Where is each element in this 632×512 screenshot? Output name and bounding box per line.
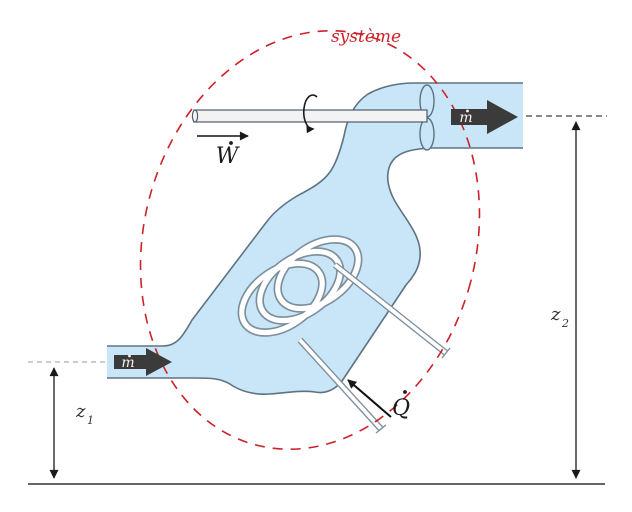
flow-system: [107, 83, 523, 394]
mass-flow-out-label: m: [459, 110, 472, 126]
z1-subscript: 1: [87, 414, 94, 427]
heat-label: Q: [392, 396, 410, 421]
shaft-bar: [194, 110, 427, 122]
shaft: [192, 110, 427, 122]
system-boundary-label: système: [331, 27, 401, 47]
z1-label: z: [75, 401, 86, 422]
z2-label: z: [550, 304, 561, 325]
height-marker-z2: z 2: [550, 122, 576, 478]
work-overdot: [229, 141, 233, 145]
z2-subscript: 2: [561, 317, 569, 330]
fluid-body: [107, 83, 523, 394]
thermodynamic-open-system-diagram: système W Q m m z 1: [0, 0, 632, 512]
shaft-end-cap: [192, 110, 197, 122]
diagram-svg: système W Q m m z 1: [0, 0, 632, 512]
mass-flow-in-label: m: [121, 355, 134, 371]
work-label: W: [216, 144, 241, 169]
height-marker-z1: z 1: [54, 368, 94, 478]
heat-overdot: [403, 390, 407, 394]
outlet-port-lower-ellipse: [420, 118, 434, 150]
work-transfer: W: [197, 136, 248, 169]
mass-flow-out-overdot: [466, 110, 469, 113]
mass-flow-in-overdot: [128, 355, 131, 358]
